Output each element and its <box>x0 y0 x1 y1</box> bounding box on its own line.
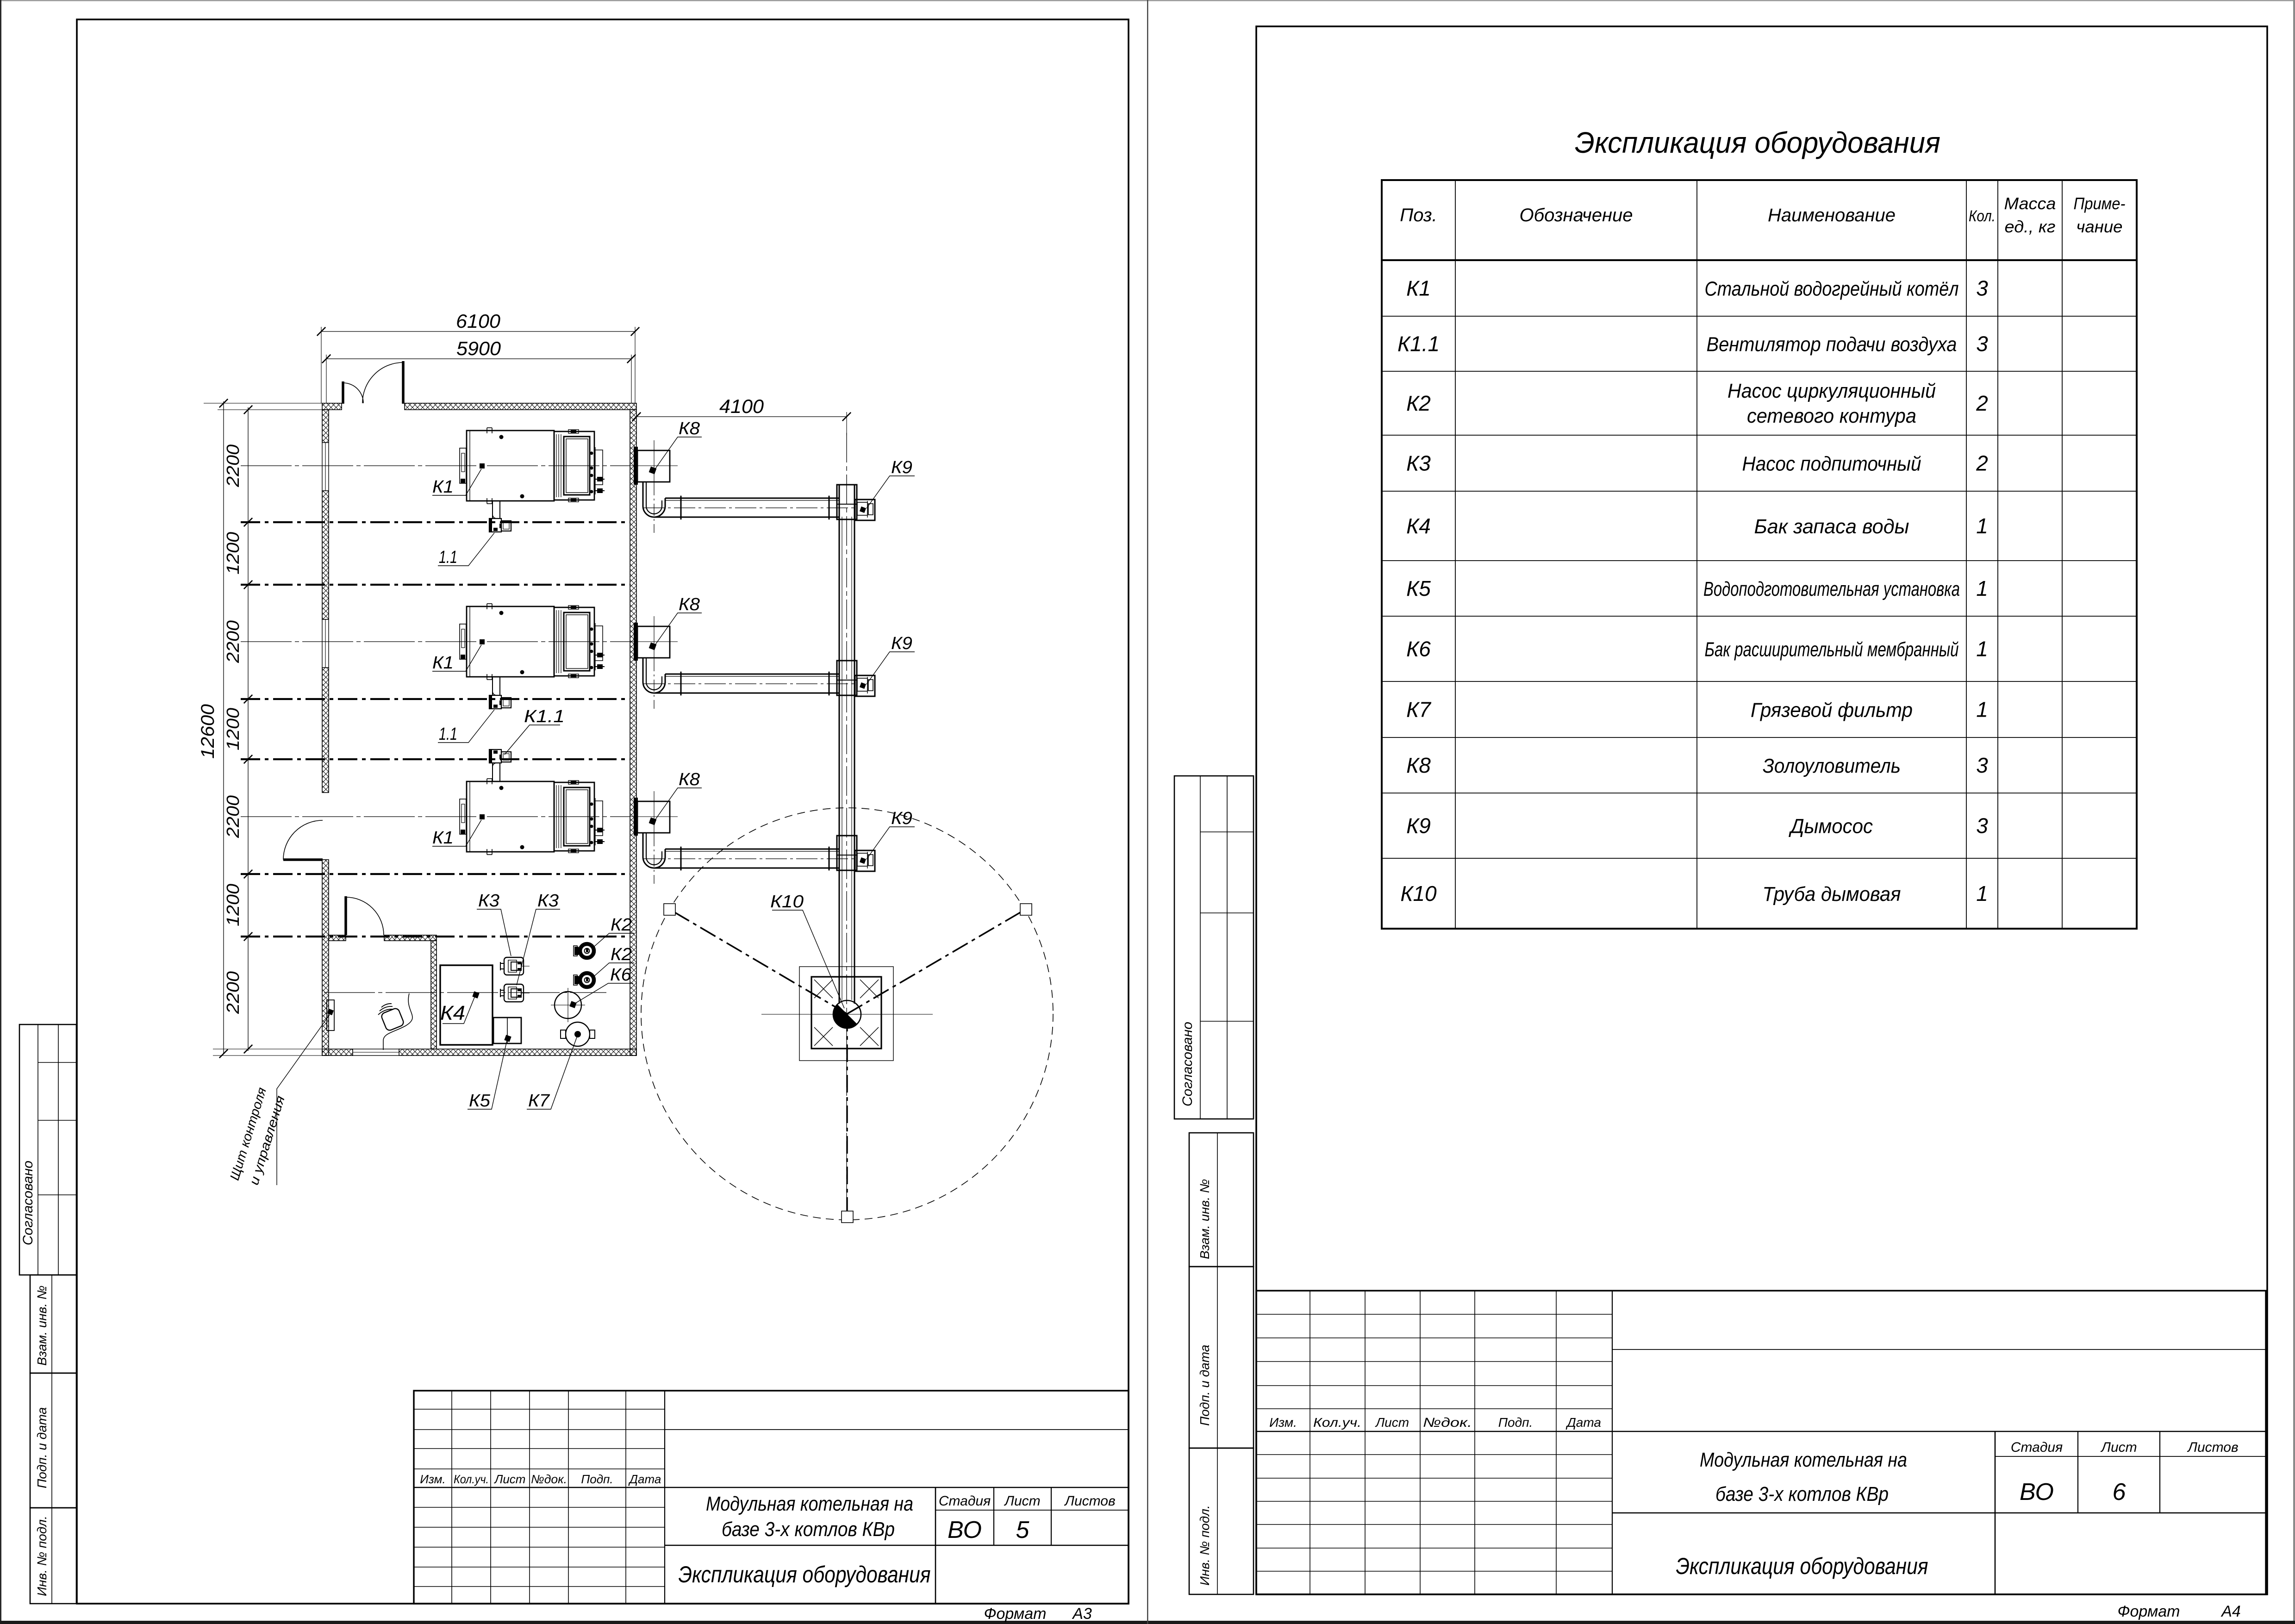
svg-text:Труба дымовая: Труба дымовая <box>1763 883 1901 906</box>
svg-text:К5: К5 <box>1406 576 1431 600</box>
svg-text:Модульная котельная на: Модульная котельная на <box>1700 1449 1907 1471</box>
svg-text:чание: чание <box>2077 217 2123 236</box>
svg-text:Приме-: Приме- <box>2074 194 2126 213</box>
svg-text:К6: К6 <box>610 965 632 985</box>
svg-text:Формат: Формат <box>984 1605 1046 1623</box>
svg-text:Бак запаса воды: Бак запаса воды <box>1754 515 1909 538</box>
svg-text:К9: К9 <box>891 458 912 477</box>
svg-text:Вентилятор подачи воздуха: Вентилятор подачи воздуха <box>1707 333 1957 356</box>
svg-text:К3: К3 <box>478 891 499 911</box>
svg-text:1200: 1200 <box>224 532 243 575</box>
svg-text:4100: 4100 <box>719 395 764 417</box>
svg-text:ВО: ВО <box>2020 1479 2054 1505</box>
svg-text:Водоподготовительная установка: Водоподготовительная установка <box>1703 578 1960 600</box>
svg-text:1.1: 1.1 <box>439 548 457 567</box>
svg-text:Лист: Лист <box>1004 1493 1040 1509</box>
svg-text:3: 3 <box>1976 332 1988 356</box>
svg-text:К3: К3 <box>1406 451 1431 475</box>
svg-text:Золоуловитель: Золоуловитель <box>1763 755 1901 777</box>
svg-text:2200: 2200 <box>224 971 243 1014</box>
svg-text:3: 3 <box>1976 814 1988 838</box>
svg-text:К5: К5 <box>469 1091 491 1111</box>
svg-text:1200: 1200 <box>224 884 243 926</box>
svg-text:сетевого контура: сетевого контура <box>1747 405 1916 427</box>
svg-text:К2: К2 <box>611 915 632 935</box>
svg-text:Наименование: Наименование <box>1768 205 1896 225</box>
svg-text:К2: К2 <box>611 945 632 964</box>
svg-text:12600: 12600 <box>198 704 218 759</box>
svg-text:Инв. № подл.: Инв. № подл. <box>1197 1505 1212 1586</box>
svg-text:№док.: №док. <box>531 1472 567 1486</box>
svg-text:Бак расширительный мембранный: Бак расширительный мембранный <box>1705 638 1959 661</box>
svg-text:Дата: Дата <box>1565 1415 1601 1430</box>
svg-text:К6: К6 <box>1406 637 1431 661</box>
svg-text:Инв. № подл.: Инв. № подл. <box>35 1516 49 1596</box>
svg-text:Подп.: Подп. <box>1498 1415 1533 1430</box>
svg-text:К9: К9 <box>1406 814 1431 838</box>
svg-text:К1.1: К1.1 <box>1397 332 1440 356</box>
svg-text:Формат: Формат <box>2117 1603 2180 1620</box>
svg-text:К1: К1 <box>432 653 454 673</box>
svg-text:К4: К4 <box>440 1002 465 1024</box>
svg-text:К10: К10 <box>1400 881 1437 906</box>
svg-text:Экспликация оборудования: Экспликация оборудования <box>1575 126 1940 159</box>
svg-text:Грязевой фильтр: Грязевой фильтр <box>1751 699 1913 722</box>
svg-text:базе 3-х котлов КВр: базе 3-х котлов КВр <box>1715 1483 1889 1505</box>
svg-text:К1: К1 <box>432 828 454 848</box>
svg-text:6: 6 <box>2113 1479 2126 1505</box>
svg-text:Изм.: Изм. <box>1269 1415 1297 1430</box>
svg-text:1: 1 <box>1976 881 1988 906</box>
svg-text:К8: К8 <box>1406 753 1431 777</box>
svg-text:1.1: 1.1 <box>439 725 457 744</box>
svg-text:№док.: №док. <box>1423 1415 1472 1430</box>
svg-text:К4: К4 <box>1406 514 1431 538</box>
svg-text:Подп. и дата: Подп. и дата <box>35 1407 49 1488</box>
svg-text:Кол.уч.: Кол.уч. <box>454 1472 489 1486</box>
svg-text:К7: К7 <box>528 1091 550 1111</box>
svg-text:А4: А4 <box>2220 1603 2241 1620</box>
svg-text:Дымосос: Дымосос <box>1788 815 1873 838</box>
svg-text:Подп.: Подп. <box>581 1472 613 1486</box>
svg-text:3: 3 <box>1976 753 1988 777</box>
svg-text:К9: К9 <box>891 634 912 653</box>
svg-text:2200: 2200 <box>224 795 243 838</box>
svg-text:Стадия: Стадия <box>939 1493 991 1509</box>
svg-text:К7: К7 <box>1406 698 1431 722</box>
svg-text:Кол.уч.: Кол.уч. <box>1313 1415 1361 1430</box>
svg-text:А3: А3 <box>1072 1605 1092 1623</box>
svg-text:Обозначение: Обозначение <box>1519 205 1633 225</box>
svg-text:Взам. инв. №: Взам. инв. № <box>1197 1179 1212 1259</box>
svg-text:6100: 6100 <box>456 310 501 332</box>
svg-text:Стадия: Стадия <box>2011 1440 2063 1455</box>
svg-text:Лист: Лист <box>1375 1415 1409 1430</box>
svg-text:Насос подпиточный: Насос подпиточный <box>1742 453 1921 475</box>
svg-text:Экспликация оборудования: Экспликация оборудования <box>679 1562 931 1587</box>
svg-text:5: 5 <box>1016 1517 1030 1543</box>
svg-text:К10: К10 <box>770 892 804 912</box>
svg-text:К9: К9 <box>891 809 912 828</box>
svg-text:ВО: ВО <box>948 1517 982 1543</box>
svg-text:базе 3-х котлов КВр: базе 3-х котлов КВр <box>722 1518 895 1541</box>
svg-text:1: 1 <box>1976 514 1988 538</box>
svg-text:2200: 2200 <box>224 620 243 663</box>
svg-text:Насос циркуляционный: Насос циркуляционный <box>1727 380 1936 402</box>
svg-text:Дата: Дата <box>628 1472 661 1486</box>
svg-text:К2: К2 <box>1406 391 1431 415</box>
svg-text:Изм.: Изм. <box>420 1472 445 1486</box>
svg-text:К8: К8 <box>679 595 700 614</box>
svg-text:Подп. и дата: Подп. и дата <box>1197 1345 1212 1426</box>
svg-text:Взам. инв. №: Взам. инв. № <box>35 1286 49 1366</box>
svg-text:1: 1 <box>1976 637 1988 661</box>
svg-text:Согласовано: Согласовано <box>1180 1022 1195 1106</box>
svg-text:К8: К8 <box>679 770 700 789</box>
svg-text:К3: К3 <box>537 891 559 911</box>
svg-text:Масса: Масса <box>2004 194 2056 213</box>
svg-text:1: 1 <box>1976 576 1988 600</box>
svg-text:1: 1 <box>1976 698 1988 722</box>
svg-text:Стальной водогрейный котёл: Стальной водогрейный котёл <box>1705 278 1959 300</box>
svg-text:Кол.: Кол. <box>1969 207 1996 225</box>
svg-text:К1: К1 <box>1406 276 1431 300</box>
svg-text:3: 3 <box>1976 276 1988 300</box>
svg-text:Лист: Лист <box>2100 1440 2137 1455</box>
svg-text:2200: 2200 <box>224 444 243 487</box>
svg-text:Экспликация оборудования: Экспликация оборудования <box>1676 1553 1928 1579</box>
svg-text:Модульная котельная на: Модульная котельная на <box>706 1493 913 1515</box>
svg-text:1200: 1200 <box>224 708 243 750</box>
svg-text:К1: К1 <box>432 477 454 497</box>
svg-text:2: 2 <box>1976 391 1988 415</box>
svg-text:К1.1: К1.1 <box>524 707 565 726</box>
svg-text:Согласовано: Согласовано <box>20 1161 36 1245</box>
svg-text:Лист: Лист <box>494 1472 526 1486</box>
svg-text:Листов: Листов <box>1064 1493 1115 1509</box>
svg-text:К8: К8 <box>679 419 700 438</box>
svg-text:Поз.: Поз. <box>1400 205 1437 225</box>
svg-text:Листов: Листов <box>2187 1440 2238 1455</box>
svg-text:2: 2 <box>1976 451 1988 475</box>
svg-text:5900: 5900 <box>456 337 501 359</box>
svg-text:ед., кг: ед., кг <box>2005 217 2056 236</box>
